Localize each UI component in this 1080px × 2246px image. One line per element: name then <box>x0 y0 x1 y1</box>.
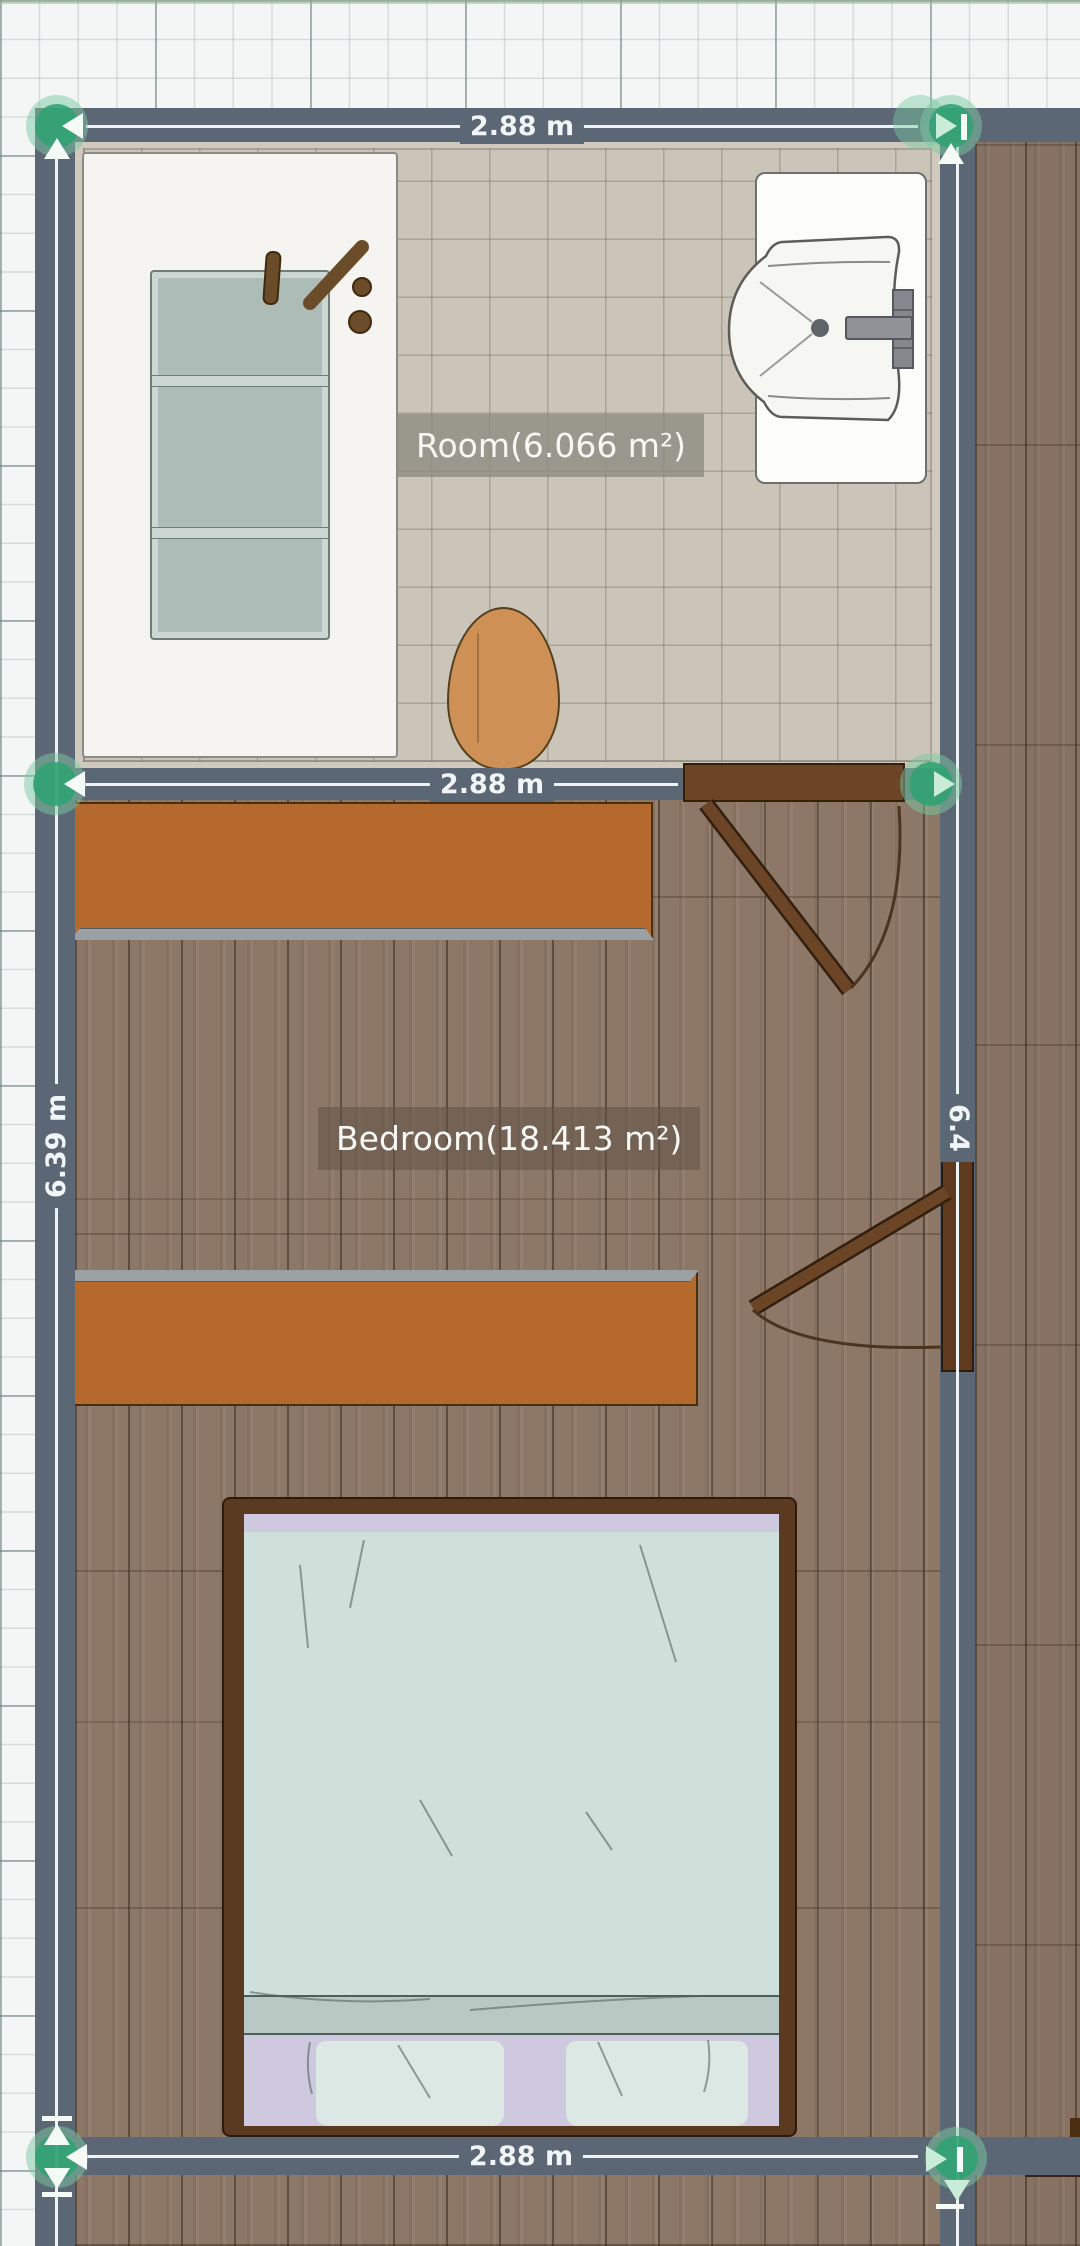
pillow <box>316 2041 504 2126</box>
drag-arrow-left-icon <box>62 113 83 139</box>
dimension-label-top: 2.88 m <box>460 110 584 144</box>
blanket-fold <box>244 1995 779 2035</box>
drag-arrow-right-icon <box>926 2146 947 2172</box>
dresser-front-edge <box>58 1270 699 1282</box>
toolbar-edge <box>0 0 1080 4</box>
drag-arrow-stop-icon <box>957 2147 963 2172</box>
dresser[interactable] <box>57 1270 698 1406</box>
bathtub-rim-divider <box>152 375 328 387</box>
floor-plan-canvas[interactable]: 2.88 m 2.88 m 2.88 m 6.39 m 6.4 Room(6.0… <box>0 0 1080 2246</box>
drag-arrow-down-icon <box>944 2180 970 2201</box>
bathtub-basin <box>150 270 330 640</box>
dimension-label-middle: 2.88 m <box>430 768 554 802</box>
drag-arrow-stop-icon <box>961 114 967 140</box>
drag-arrow-up-icon <box>44 138 70 159</box>
bathtub-rim-divider <box>152 527 328 539</box>
drag-arrow-stop-icon <box>42 2116 72 2121</box>
dimension-line-right <box>956 143 959 2246</box>
double-bed[interactable] <box>222 1497 797 2137</box>
drag-arrow-stop-icon <box>42 2192 72 2197</box>
pillow <box>566 2041 748 2126</box>
drag-arrow-right-icon <box>936 113 957 139</box>
drag-arrow-stop-icon <box>936 2204 964 2209</box>
bed-blanket <box>244 1532 779 1995</box>
bed-mattress <box>244 1514 779 2126</box>
drag-arrow-up-icon <box>938 143 964 164</box>
drag-arrow-down-icon <box>44 2168 70 2189</box>
bathroom-door[interactable] <box>683 763 905 802</box>
dimension-label-left: 6.39 m <box>40 1084 74 1208</box>
sink[interactable] <box>755 172 927 484</box>
bed-sheet <box>244 1514 779 1532</box>
drag-arrow-right-icon <box>934 771 955 797</box>
dresser-front-edge <box>71 928 654 940</box>
drag-arrow-up-icon <box>44 2124 70 2145</box>
drag-arrow-left-icon <box>64 771 85 797</box>
adjacent-room-floor[interactable] <box>975 142 1080 2246</box>
adjacent-room-furniture[interactable] <box>1070 2118 1080 2137</box>
dresser[interactable] <box>70 802 653 940</box>
dimension-label-bottom: 2.88 m <box>459 2140 583 2174</box>
room-label-bedroom[interactable]: Bedroom(18.413 m²) <box>318 1107 700 1170</box>
bathtub[interactable] <box>82 152 398 758</box>
dimension-label-right: 6.4 <box>941 1094 975 1162</box>
dimension-line-middle <box>75 783 678 786</box>
room-label-bathroom[interactable]: Room(6.066 m²) <box>398 414 704 477</box>
drag-arrow-left-icon <box>66 2144 87 2170</box>
